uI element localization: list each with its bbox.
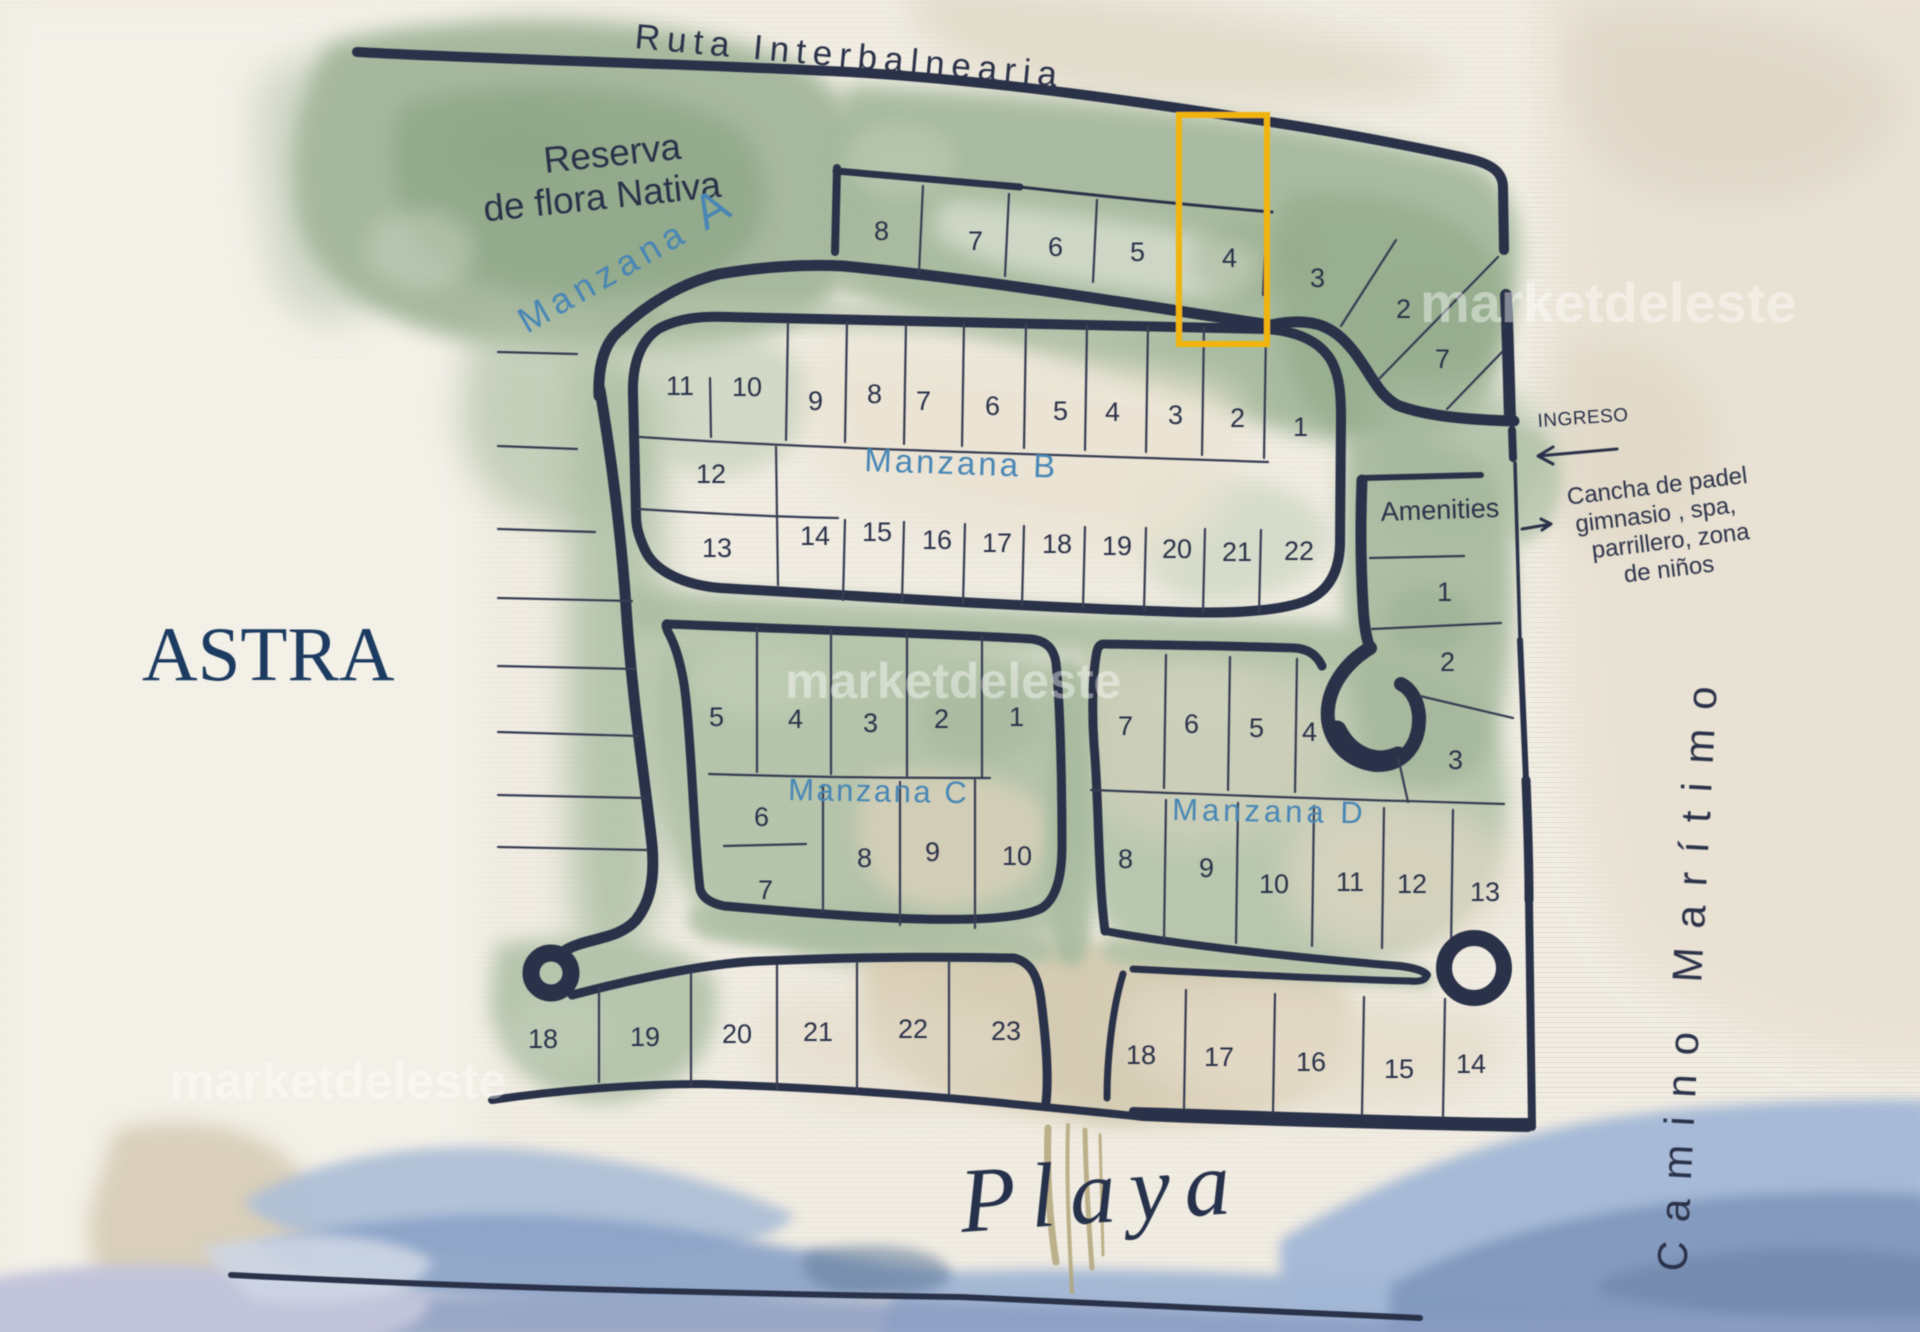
svg-text:10: 10 bbox=[732, 372, 762, 402]
svg-text:9: 9 bbox=[1199, 853, 1214, 883]
svg-text:Manzana B: Manzana B bbox=[864, 441, 1059, 485]
svg-text:5: 5 bbox=[1249, 713, 1264, 743]
svg-text:marketdeleste: marketdeleste bbox=[1420, 271, 1797, 334]
svg-text:2: 2 bbox=[1440, 647, 1455, 677]
svg-text:19: 19 bbox=[1102, 531, 1132, 561]
svg-text:12: 12 bbox=[696, 459, 726, 489]
svg-text:10: 10 bbox=[1002, 841, 1032, 871]
svg-text:1: 1 bbox=[1437, 577, 1452, 607]
svg-text:20: 20 bbox=[1162, 534, 1192, 564]
svg-text:15: 15 bbox=[1384, 1054, 1414, 1084]
svg-text:6: 6 bbox=[985, 391, 1000, 421]
svg-text:7: 7 bbox=[1435, 344, 1450, 374]
svg-text:Manzana D: Manzana D bbox=[1172, 792, 1367, 830]
svg-text:Amenities: Amenities bbox=[1380, 493, 1500, 527]
svg-text:ASTRA: ASTRA bbox=[142, 611, 395, 697]
svg-text:8: 8 bbox=[857, 843, 872, 873]
svg-text:6: 6 bbox=[754, 802, 769, 832]
svg-text:14: 14 bbox=[1456, 1049, 1486, 1079]
svg-text:15: 15 bbox=[862, 517, 892, 547]
svg-text:7: 7 bbox=[968, 226, 983, 256]
svg-text:7: 7 bbox=[916, 386, 931, 416]
svg-text:11: 11 bbox=[1336, 867, 1364, 897]
svg-text:21: 21 bbox=[803, 1017, 833, 1047]
svg-text:8: 8 bbox=[1118, 844, 1133, 874]
svg-text:7: 7 bbox=[758, 875, 773, 905]
svg-text:20: 20 bbox=[722, 1019, 752, 1049]
svg-text:13: 13 bbox=[1470, 877, 1500, 907]
svg-text:12: 12 bbox=[1397, 869, 1427, 899]
svg-text:marketdeleste: marketdeleste bbox=[785, 653, 1121, 709]
svg-text:1: 1 bbox=[1293, 412, 1308, 442]
svg-text:2: 2 bbox=[1396, 294, 1411, 324]
svg-text:18: 18 bbox=[528, 1024, 558, 1054]
svg-text:19: 19 bbox=[630, 1022, 660, 1052]
svg-text:16: 16 bbox=[922, 525, 952, 555]
svg-text:21: 21 bbox=[1222, 537, 1252, 567]
svg-text:7: 7 bbox=[1118, 711, 1133, 741]
svg-text:23: 23 bbox=[991, 1016, 1021, 1046]
svg-text:5: 5 bbox=[1053, 396, 1068, 426]
svg-text:18: 18 bbox=[1042, 529, 1072, 559]
svg-text:3: 3 bbox=[1310, 263, 1325, 293]
svg-text:6: 6 bbox=[1184, 709, 1199, 739]
svg-text:marketdeleste: marketdeleste bbox=[170, 1053, 506, 1109]
svg-text:3: 3 bbox=[1168, 400, 1183, 430]
svg-text:Playa: Playa bbox=[955, 1130, 1247, 1252]
svg-text:18: 18 bbox=[1126, 1040, 1156, 1070]
svg-text:5: 5 bbox=[1130, 237, 1145, 267]
svg-text:8: 8 bbox=[867, 379, 882, 409]
svg-text:3: 3 bbox=[1448, 745, 1463, 775]
svg-text:22: 22 bbox=[1284, 536, 1314, 566]
svg-text:16: 16 bbox=[1296, 1047, 1326, 1077]
svg-text:17: 17 bbox=[1204, 1042, 1234, 1072]
svg-text:Manzana C: Manzana C bbox=[788, 772, 970, 810]
svg-text:11: 11 bbox=[666, 371, 694, 401]
svg-text:8: 8 bbox=[874, 216, 889, 246]
svg-text:4: 4 bbox=[1222, 243, 1237, 273]
svg-text:5: 5 bbox=[709, 702, 724, 732]
svg-text:14: 14 bbox=[800, 521, 830, 551]
svg-text:9: 9 bbox=[925, 837, 940, 867]
svg-text:10: 10 bbox=[1259, 869, 1289, 899]
svg-text:6: 6 bbox=[1048, 232, 1063, 262]
svg-text:4: 4 bbox=[1302, 717, 1317, 747]
svg-text:4: 4 bbox=[1105, 397, 1120, 427]
svg-text:2: 2 bbox=[1230, 403, 1245, 433]
svg-text:13: 13 bbox=[702, 533, 732, 563]
svg-text:3: 3 bbox=[863, 708, 878, 738]
svg-text:22: 22 bbox=[898, 1014, 928, 1044]
svg-text:17: 17 bbox=[982, 528, 1012, 558]
svg-text:9: 9 bbox=[808, 386, 823, 416]
